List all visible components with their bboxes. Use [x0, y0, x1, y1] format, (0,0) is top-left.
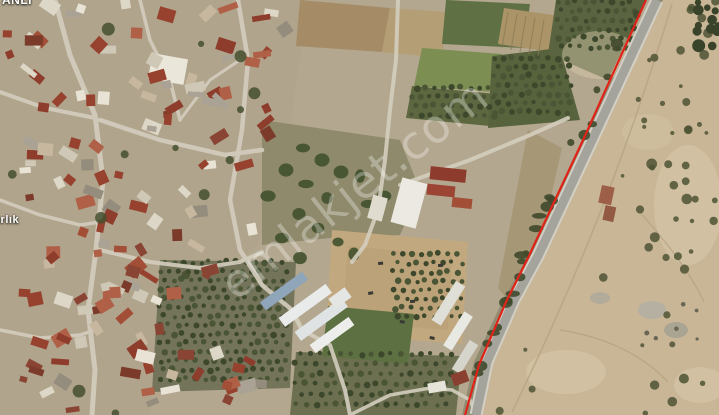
building [97, 91, 109, 105]
tree [95, 212, 107, 224]
tree [357, 370, 364, 377]
tree [359, 352, 365, 358]
tree [508, 54, 514, 60]
tree [310, 373, 316, 379]
tree [622, 7, 627, 12]
tree [348, 351, 353, 356]
tree [559, 25, 564, 30]
tree [309, 392, 314, 397]
tree [439, 352, 444, 357]
tree [509, 109, 515, 115]
tree [237, 357, 244, 364]
tree [279, 350, 284, 355]
tree [172, 350, 177, 355]
tree [537, 74, 543, 80]
tree [460, 279, 465, 284]
tree [210, 375, 217, 382]
tree [692, 39, 705, 52]
bush [496, 407, 504, 415]
tree [427, 370, 433, 376]
tree [324, 362, 328, 366]
tree [522, 64, 529, 71]
tree [73, 385, 86, 398]
bush [640, 343, 644, 347]
tree [567, 99, 573, 105]
tree [695, 22, 702, 29]
tree [347, 370, 353, 376]
tree [384, 362, 389, 367]
bush [523, 348, 527, 352]
tree [506, 101, 512, 107]
tree [121, 150, 129, 158]
debris [644, 331, 649, 336]
tree [624, 27, 628, 31]
building [166, 287, 181, 300]
tree [176, 377, 182, 383]
tree [435, 250, 441, 256]
tree [591, 17, 598, 24]
tree [583, 0, 588, 5]
tree [419, 288, 423, 292]
building [178, 350, 194, 360]
tree [237, 106, 244, 113]
tree [369, 392, 375, 398]
tree [308, 351, 313, 356]
building [19, 289, 31, 298]
tree [496, 82, 502, 88]
tree [407, 370, 414, 377]
tree [454, 251, 460, 257]
bush [682, 98, 690, 106]
bush [682, 162, 690, 170]
tree [523, 100, 528, 105]
tree [378, 391, 384, 397]
tree [558, 64, 563, 69]
debris-pile [638, 301, 666, 319]
debris [696, 337, 699, 340]
tree [189, 278, 193, 282]
tree [577, 26, 583, 32]
tree [431, 260, 435, 264]
tree [196, 294, 201, 299]
vehicle [378, 262, 383, 265]
tree [409, 94, 414, 99]
tree [432, 86, 436, 90]
tree [203, 323, 208, 328]
tree [8, 170, 17, 179]
tree [438, 289, 443, 294]
tree [416, 280, 420, 284]
tree [424, 261, 429, 266]
tree [555, 110, 561, 116]
tree [708, 42, 717, 51]
bush [642, 125, 646, 129]
tree [599, 34, 604, 39]
tree [275, 377, 279, 381]
tree [712, 7, 719, 14]
tree [161, 366, 166, 371]
tree [260, 348, 266, 354]
bush [697, 122, 702, 127]
tree [506, 65, 513, 72]
tree [445, 251, 450, 256]
tree [411, 271, 417, 277]
tree [413, 381, 417, 385]
tree [546, 92, 553, 99]
tree [194, 323, 200, 329]
tree [409, 352, 414, 357]
building [25, 160, 36, 166]
tree [570, 28, 575, 33]
tree [493, 93, 497, 97]
tree [391, 287, 397, 293]
tree [238, 376, 242, 380]
tree [354, 402, 359, 407]
tree [160, 312, 166, 318]
tree [400, 269, 405, 274]
tree [550, 65, 555, 70]
tree [261, 313, 267, 319]
tree [225, 368, 231, 374]
tree [257, 359, 262, 364]
tree [198, 277, 203, 282]
tree [243, 331, 247, 335]
bush [700, 381, 705, 386]
tree [211, 304, 216, 309]
bush [621, 174, 625, 178]
tree [569, 83, 574, 88]
tree [279, 163, 294, 176]
tree [502, 93, 508, 99]
tree [182, 271, 190, 279]
tree [525, 89, 532, 96]
tree [199, 189, 210, 200]
building [93, 249, 102, 257]
tree [383, 401, 389, 407]
tree [519, 74, 525, 80]
bush [650, 380, 659, 389]
bush [679, 374, 689, 384]
tree [183, 375, 188, 380]
tree [455, 306, 460, 311]
tree [254, 338, 261, 345]
tree [442, 360, 447, 365]
tree [528, 56, 534, 62]
bush [709, 217, 717, 225]
tree [403, 381, 409, 387]
tree [555, 17, 560, 22]
tree [179, 330, 185, 336]
tree [270, 332, 277, 339]
tree [190, 333, 196, 339]
debris [681, 302, 686, 307]
vehicle [410, 300, 415, 303]
bush [692, 196, 699, 203]
tree [201, 339, 207, 345]
tree [192, 303, 198, 309]
tree [559, 43, 564, 48]
tree [404, 314, 409, 319]
tree [230, 305, 235, 310]
tree [162, 349, 168, 355]
tree [158, 377, 163, 382]
tree [584, 19, 589, 24]
tree [427, 287, 431, 291]
tree [215, 294, 221, 300]
tree [215, 313, 221, 319]
tree [378, 351, 384, 357]
tree [573, 35, 577, 39]
tree [401, 288, 407, 294]
tree [298, 371, 305, 378]
building [38, 102, 50, 112]
tree [424, 297, 428, 301]
tree [405, 403, 410, 408]
tree [250, 366, 256, 372]
tree [271, 314, 278, 321]
tree [597, 45, 602, 50]
bush [690, 219, 694, 223]
tree [508, 90, 514, 96]
red-roof-building [452, 197, 473, 209]
tree [183, 339, 189, 345]
tree [704, 4, 711, 11]
tree [555, 35, 562, 42]
tree [433, 361, 438, 366]
building [164, 114, 172, 126]
tree [628, 18, 633, 23]
tree [198, 313, 203, 318]
bush [650, 232, 660, 242]
tree [314, 402, 320, 408]
tree [565, 18, 569, 22]
tree [429, 271, 434, 276]
tree [226, 156, 234, 164]
tree [611, 39, 624, 49]
bush [712, 198, 718, 204]
tree [443, 401, 448, 406]
tree [221, 359, 227, 365]
tree [399, 304, 405, 310]
tree [298, 180, 313, 188]
bush [674, 252, 682, 260]
bush [660, 101, 665, 106]
tree [455, 270, 461, 276]
tree [207, 296, 212, 301]
tree [388, 351, 392, 355]
tree [418, 371, 422, 375]
tree [270, 350, 274, 354]
tree [372, 380, 378, 386]
tree [524, 83, 529, 88]
tree [409, 251, 415, 257]
tree [555, 92, 561, 98]
tree [414, 402, 420, 408]
tree [193, 286, 198, 291]
tree [262, 332, 267, 337]
tree [496, 64, 501, 69]
tree [173, 315, 177, 319]
tree [495, 99, 501, 105]
tree [185, 305, 191, 311]
tree [266, 359, 272, 365]
tree [395, 313, 401, 319]
tree [189, 296, 195, 302]
tree [157, 340, 163, 346]
tree [400, 373, 404, 377]
tree [411, 289, 416, 294]
tree [546, 110, 550, 114]
tree [215, 331, 221, 337]
building [154, 323, 164, 336]
tree [493, 57, 497, 61]
vehicle [438, 264, 443, 267]
tree [411, 359, 417, 365]
debris-pile [590, 292, 610, 304]
tree [546, 196, 555, 202]
tree [229, 358, 233, 362]
tree [275, 305, 282, 312]
tree [393, 401, 398, 406]
tree [235, 314, 239, 318]
tree [422, 277, 427, 282]
tree [267, 324, 273, 330]
tree [500, 73, 507, 80]
bush [663, 311, 670, 318]
tree [293, 381, 297, 385]
tree [199, 333, 204, 338]
tree [413, 260, 419, 266]
tree [368, 371, 372, 375]
tree [567, 139, 574, 146]
tree [519, 92, 525, 98]
tree [404, 362, 408, 366]
tree [597, 9, 601, 13]
tree [186, 288, 191, 293]
tree [423, 401, 428, 406]
tree [605, 8, 611, 14]
tree [432, 278, 438, 284]
tree [610, 18, 616, 24]
tree [242, 312, 246, 316]
tree [581, 34, 587, 40]
tree [255, 321, 261, 327]
tree [301, 379, 308, 386]
tree [220, 304, 226, 310]
tree [208, 333, 212, 337]
tree [423, 361, 429, 367]
tree [256, 304, 262, 310]
tree [614, 8, 620, 14]
tree [619, 18, 625, 24]
tree [171, 332, 178, 339]
bush [664, 160, 672, 168]
tree [275, 359, 280, 364]
tree [379, 372, 384, 377]
tree [422, 85, 428, 91]
tree [225, 314, 229, 318]
tree [298, 351, 302, 355]
building [255, 379, 267, 388]
tree [202, 304, 206, 308]
tree [438, 371, 444, 377]
bush [676, 46, 685, 55]
bush [646, 159, 657, 170]
tree [427, 251, 433, 257]
tree [270, 367, 274, 371]
tree [354, 382, 360, 388]
tree [395, 260, 399, 264]
tree [252, 349, 258, 355]
tree [260, 367, 265, 372]
tree [324, 382, 330, 388]
tree [260, 190, 275, 201]
tree [210, 285, 216, 291]
tree [283, 376, 288, 381]
tree [517, 108, 523, 114]
bush [529, 386, 536, 393]
building [77, 305, 93, 316]
tree [491, 73, 496, 78]
bush [644, 243, 653, 252]
tree [422, 313, 427, 318]
tree [225, 350, 229, 354]
tree [398, 351, 404, 357]
tree [102, 23, 115, 36]
tree [303, 361, 308, 366]
bush [669, 341, 675, 347]
building [114, 246, 127, 253]
building [25, 35, 43, 45]
tree [526, 108, 532, 114]
tree [167, 359, 171, 363]
tree [381, 379, 387, 385]
tree [296, 144, 310, 153]
tree [597, 28, 602, 33]
building [37, 142, 54, 156]
tree [247, 322, 252, 327]
tree [274, 340, 279, 345]
tree [394, 295, 400, 301]
tree [419, 252, 424, 257]
tree [501, 56, 507, 62]
tree [407, 262, 412, 267]
bush [673, 216, 679, 222]
bush [662, 254, 669, 261]
tree [435, 403, 439, 407]
tree [509, 73, 513, 77]
tree [313, 381, 318, 386]
tree [570, 10, 574, 14]
tree [207, 314, 213, 320]
tree [444, 268, 450, 274]
tree [400, 251, 406, 257]
tree [505, 82, 511, 88]
tree [449, 352, 454, 357]
tree [167, 269, 172, 274]
tree [292, 360, 298, 366]
tree [238, 322, 242, 326]
building [19, 167, 31, 174]
tree [165, 339, 170, 344]
bush [682, 177, 690, 185]
bush [679, 84, 683, 88]
tree [436, 269, 442, 275]
bush [684, 126, 693, 135]
tree [176, 269, 181, 274]
tree [564, 92, 570, 98]
tree [318, 351, 322, 355]
